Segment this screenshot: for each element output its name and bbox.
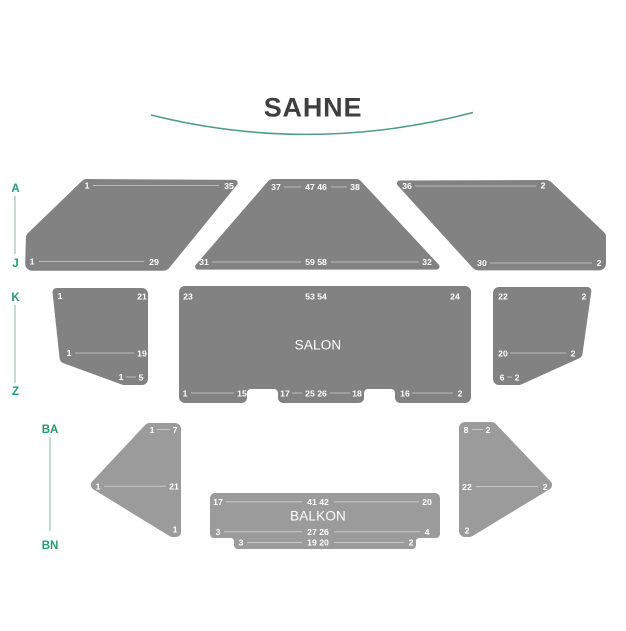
svg-text:2: 2 xyxy=(458,389,463,399)
svg-text:21: 21 xyxy=(137,292,147,302)
svg-text:19 20: 19 20 xyxy=(307,538,329,548)
svg-text:SALON: SALON xyxy=(295,338,342,353)
svg-text:35: 35 xyxy=(224,181,234,191)
svg-text:31: 31 xyxy=(199,257,209,267)
svg-text:3: 3 xyxy=(239,538,244,548)
svg-text:27 26: 27 26 xyxy=(307,527,329,537)
svg-text:53 54: 53 54 xyxy=(305,292,327,302)
svg-text:1: 1 xyxy=(150,425,155,435)
svg-text:5: 5 xyxy=(139,373,144,383)
svg-text:1: 1 xyxy=(173,525,178,535)
svg-text:20: 20 xyxy=(422,497,432,507)
svg-text:41 42: 41 42 xyxy=(307,497,329,507)
svg-text:38: 38 xyxy=(350,182,360,192)
svg-text:19: 19 xyxy=(137,349,147,359)
svg-text:15: 15 xyxy=(237,389,247,399)
svg-text:BALKON: BALKON xyxy=(290,509,346,524)
svg-text:2: 2 xyxy=(597,258,602,268)
svg-text:1: 1 xyxy=(30,257,35,267)
svg-text:2: 2 xyxy=(486,425,491,435)
svg-text:1: 1 xyxy=(119,372,124,382)
svg-text:20: 20 xyxy=(498,349,508,359)
svg-text:BN: BN xyxy=(42,540,59,552)
svg-text:4: 4 xyxy=(425,527,430,537)
svg-text:1: 1 xyxy=(183,389,188,399)
svg-text:22: 22 xyxy=(462,482,472,492)
svg-text:2: 2 xyxy=(465,526,470,536)
svg-text:1: 1 xyxy=(67,348,72,358)
svg-text:23: 23 xyxy=(183,292,193,302)
svg-text:25 26: 25 26 xyxy=(305,389,327,399)
svg-text:BA: BA xyxy=(42,424,59,436)
svg-text:36: 36 xyxy=(402,181,412,191)
svg-text:K: K xyxy=(11,292,20,304)
svg-text:1: 1 xyxy=(58,291,63,301)
svg-text:21: 21 xyxy=(169,482,179,492)
svg-text:59 58: 59 58 xyxy=(305,257,327,267)
svg-text:17: 17 xyxy=(280,389,290,399)
svg-text:16: 16 xyxy=(400,389,410,399)
svg-text:2: 2 xyxy=(541,181,546,191)
svg-text:24: 24 xyxy=(450,292,460,302)
svg-text:18: 18 xyxy=(352,389,362,399)
svg-text:3: 3 xyxy=(216,527,221,537)
svg-text:6: 6 xyxy=(500,373,505,383)
svg-text:47 46: 47 46 xyxy=(305,182,327,192)
svg-text:1: 1 xyxy=(85,181,90,191)
svg-text:2: 2 xyxy=(409,538,414,548)
svg-text:37: 37 xyxy=(271,182,281,192)
svg-text:2: 2 xyxy=(543,482,548,492)
svg-text:22: 22 xyxy=(498,292,508,302)
svg-text:30: 30 xyxy=(477,258,487,268)
svg-text:17: 17 xyxy=(213,497,223,507)
svg-text:8: 8 xyxy=(464,425,469,435)
svg-text:Z: Z xyxy=(12,386,19,398)
svg-text:SAHNE: SAHNE xyxy=(264,93,363,123)
svg-text:2: 2 xyxy=(582,292,587,302)
svg-text:2: 2 xyxy=(571,349,576,359)
svg-text:7: 7 xyxy=(173,425,178,435)
svg-text:32: 32 xyxy=(422,257,432,267)
svg-text:1: 1 xyxy=(96,482,101,492)
svg-text:J: J xyxy=(12,258,18,270)
svg-text:29: 29 xyxy=(149,257,159,267)
svg-text:2: 2 xyxy=(515,373,520,383)
svg-text:A: A xyxy=(11,183,19,195)
